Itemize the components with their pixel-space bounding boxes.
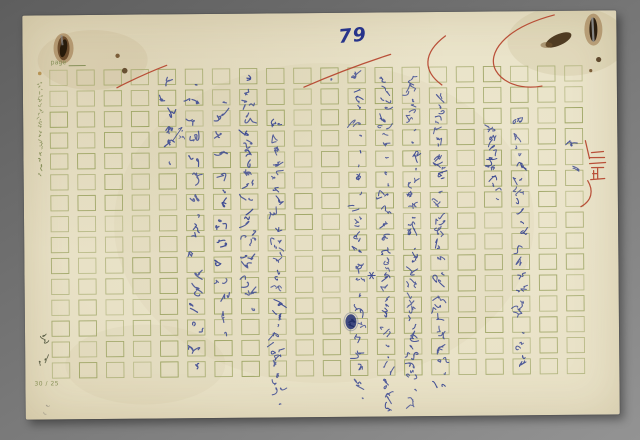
rust-spot bbox=[115, 54, 119, 58]
manuscript-page: page 79 30 / 25 bbox=[22, 10, 620, 419]
page-number-handwritten: 79 bbox=[337, 23, 367, 48]
grid-cell bbox=[565, 108, 583, 123]
grid-cell bbox=[78, 154, 96, 169]
printed-margin-note bbox=[37, 82, 44, 176]
rust-spot bbox=[122, 68, 128, 74]
grid-cell bbox=[52, 279, 70, 294]
grid-cell bbox=[486, 359, 504, 374]
grid-cell bbox=[52, 321, 70, 336]
grid-cell bbox=[539, 275, 557, 290]
grid-cell bbox=[78, 174, 96, 189]
red-margin-tick bbox=[585, 141, 589, 159]
staple-right-metal bbox=[592, 18, 593, 42]
scanner-background: page 79 30 / 25 bbox=[0, 0, 640, 440]
grid-cell bbox=[566, 212, 584, 227]
grid-cell bbox=[565, 149, 583, 164]
grid-cell bbox=[50, 91, 68, 106]
grid-cell bbox=[104, 91, 122, 106]
grid-cell bbox=[51, 237, 69, 252]
grid-cell bbox=[566, 254, 584, 269]
grid-cell bbox=[567, 337, 585, 352]
grid-cell bbox=[540, 359, 558, 374]
grid-cell bbox=[513, 338, 531, 353]
grid-cell bbox=[78, 216, 96, 231]
rust-spot bbox=[38, 72, 42, 76]
grid-cell bbox=[567, 358, 585, 373]
staple-left-metal bbox=[61, 35, 62, 45]
grid-cell bbox=[511, 87, 529, 102]
grid-cell bbox=[106, 279, 124, 294]
rust-spot bbox=[596, 57, 601, 62]
grid-cell bbox=[104, 112, 122, 127]
grid-cell bbox=[538, 150, 556, 165]
grid-cell bbox=[50, 133, 68, 148]
grid-cell bbox=[51, 196, 69, 211]
grid-cell bbox=[566, 275, 584, 290]
grid-cell bbox=[565, 87, 583, 102]
grid-cell bbox=[486, 338, 504, 353]
grid-cell bbox=[456, 67, 474, 82]
grid-cell bbox=[567, 296, 585, 311]
grid-cell bbox=[77, 133, 95, 148]
red-paren-arc bbox=[428, 36, 446, 85]
grid-cell bbox=[51, 175, 69, 190]
faint-pencil-marks bbox=[44, 405, 50, 414]
grid-cell bbox=[79, 321, 97, 336]
grid-cell bbox=[52, 342, 70, 357]
grid-cell bbox=[538, 129, 556, 144]
grid-cell bbox=[78, 258, 96, 273]
grid-cell bbox=[540, 338, 558, 353]
grid-cell bbox=[567, 317, 585, 332]
rust-spot bbox=[589, 69, 592, 72]
grid-cell bbox=[79, 279, 97, 294]
grid-cell bbox=[540, 296, 558, 311]
grid-cell bbox=[539, 191, 557, 206]
grid-cell bbox=[50, 154, 68, 169]
grid-cell bbox=[539, 254, 557, 269]
grid-cell bbox=[539, 233, 557, 248]
grid-cell bbox=[565, 128, 583, 143]
grid-cell bbox=[104, 132, 122, 147]
grid-spec-label: 30 / 25 bbox=[34, 380, 59, 387]
page-label: page bbox=[51, 58, 86, 66]
grid-cell bbox=[566, 170, 584, 185]
red-margin-tail bbox=[581, 181, 592, 207]
grid-cell bbox=[538, 170, 556, 185]
grid-cell bbox=[105, 153, 123, 168]
grid-cell bbox=[540, 317, 558, 332]
grid-cell bbox=[52, 300, 70, 315]
grid-cell bbox=[51, 258, 69, 273]
annotation-zheng-glyph bbox=[591, 168, 605, 180]
grid-cell bbox=[538, 87, 556, 102]
grid-cell bbox=[538, 108, 556, 123]
grid-cell bbox=[512, 296, 530, 311]
grid-cell bbox=[513, 359, 531, 374]
grid-cell bbox=[511, 129, 529, 144]
grid-cell bbox=[459, 359, 477, 374]
page-number-line bbox=[68, 61, 85, 66]
grid-cell bbox=[78, 237, 96, 252]
grid-cell bbox=[78, 195, 96, 210]
grid-cell bbox=[510, 66, 528, 81]
grid-cell bbox=[513, 317, 531, 332]
grid-cell bbox=[566, 233, 584, 248]
publisher-side-mark bbox=[39, 334, 49, 365]
grid-cell bbox=[50, 112, 68, 127]
grid-cell bbox=[79, 300, 97, 315]
annotation-san-glyph bbox=[589, 152, 605, 164]
grid-cell bbox=[539, 212, 557, 227]
grid-cell bbox=[483, 87, 501, 102]
grid-cell bbox=[77, 112, 95, 127]
grid-cell bbox=[185, 69, 203, 84]
manuscript-scan-layers bbox=[22, 10, 620, 419]
grid-cell bbox=[566, 191, 584, 206]
grid-cell bbox=[131, 111, 149, 126]
grid-cell bbox=[77, 91, 95, 106]
grid-cell bbox=[51, 217, 69, 232]
grid-cell bbox=[106, 300, 124, 315]
grid-cell bbox=[131, 90, 149, 105]
page-label-text: page bbox=[51, 58, 67, 66]
